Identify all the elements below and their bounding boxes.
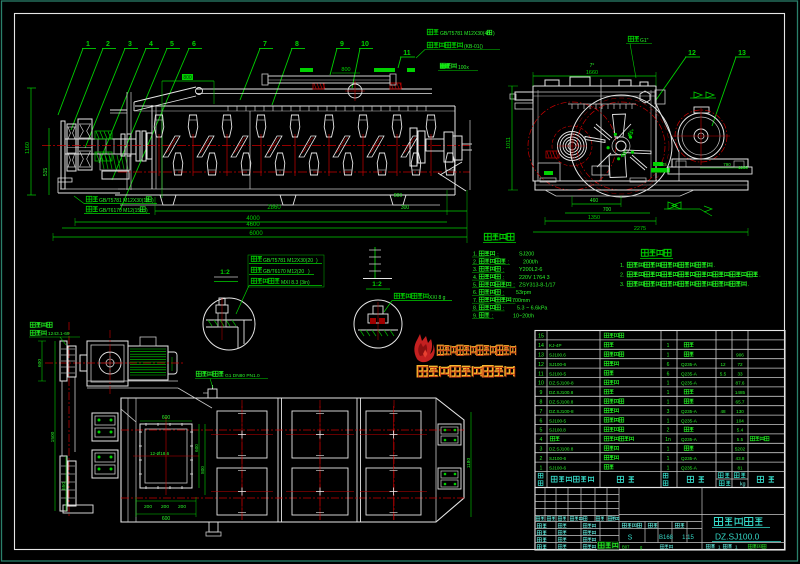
svg-text:800: 800	[341, 67, 350, 73]
svg-text:DZ.SJ100.8: DZ.SJ100.8	[549, 390, 574, 395]
svg-text:11: 11	[538, 371, 543, 377]
svg-text:B07: B07	[622, 545, 630, 550]
svg-text:8: 8	[295, 41, 299, 48]
svg-text:.: .	[759, 273, 761, 279]
svg-text:1: 1	[540, 465, 543, 471]
svg-text:SJ100-6: SJ100-6	[549, 465, 567, 470]
svg-text:B168: B168	[659, 535, 674, 541]
svg-text:6: 6	[667, 371, 670, 377]
svg-text:12: 12	[688, 50, 696, 57]
svg-text:DZ.SJ100.8: DZ.SJ100.8	[549, 400, 574, 405]
svg-text:10~20t/h: 10~20t/h	[513, 313, 534, 319]
svg-text:1160: 1160	[25, 142, 31, 154]
svg-text:3: 3	[667, 409, 670, 415]
svg-text:3: 3	[540, 447, 543, 453]
svg-text:G1 DN80 PN1.0: G1 DN80 PN1.0	[225, 373, 260, 379]
svg-text:SJ100.6: SJ100.6	[549, 353, 566, 358]
svg-text:SJ100.8: SJ100.8	[549, 428, 566, 433]
svg-text:.: .	[714, 263, 716, 269]
svg-text:2860: 2860	[267, 205, 281, 211]
svg-text:SJ100-5: SJ100-5	[549, 418, 567, 423]
svg-text:SJ100-6: SJ100-6	[549, 362, 567, 367]
svg-text:7: 7	[263, 41, 267, 48]
svg-text:GB/T6170 M12(20: GB/T6170 M12(20	[263, 269, 304, 275]
svg-text:Q235-A: Q235-A	[681, 456, 698, 461]
svg-text:2.: 2.	[620, 273, 625, 279]
svg-text:SJ100-6: SJ100-6	[549, 456, 567, 461]
svg-text:1350: 1350	[588, 215, 600, 221]
svg-text:(KB-01(): (KB-01()	[464, 44, 483, 50]
svg-text:6: 6	[667, 362, 670, 368]
svg-text:460: 460	[590, 198, 599, 204]
svg-text:10: 10	[538, 381, 544, 387]
svg-text:1: 1	[667, 390, 670, 396]
svg-text:12: 12	[720, 362, 726, 367]
svg-text:9: 9	[340, 41, 344, 48]
svg-text:11: 11	[403, 50, 411, 57]
svg-text:7°: 7°	[590, 63, 595, 69]
svg-text:600: 600	[194, 444, 199, 452]
svg-text:Q235-A: Q235-A	[681, 409, 698, 414]
svg-text:kg: kg	[740, 482, 746, 488]
svg-text:5.4: 5.4	[737, 428, 744, 433]
svg-text:33: 33	[737, 371, 743, 376]
svg-text:1485: 1485	[735, 390, 746, 395]
svg-text:43.8: 43.8	[736, 456, 745, 461]
svg-text:13: 13	[738, 50, 746, 57]
svg-text:200: 200	[144, 504, 152, 510]
svg-text:200: 200	[161, 504, 169, 510]
svg-text:Q235-A: Q235-A	[681, 418, 698, 423]
svg-text:GB/T5781 M12X30(12: GB/T5781 M12X30(12	[99, 198, 149, 204]
svg-text:3.: 3.	[620, 282, 625, 288]
svg-text:5: 5	[540, 428, 543, 434]
svg-text:.: .	[748, 282, 750, 288]
svg-text:906: 906	[736, 353, 744, 358]
svg-text:1: 1	[667, 447, 670, 453]
svg-text:600: 600	[37, 359, 43, 367]
svg-text:53rpm: 53rpm	[516, 290, 532, 296]
svg-text:65.7: 65.7	[736, 400, 745, 405]
svg-text:81: 81	[737, 465, 743, 470]
svg-text:1: 1	[667, 381, 670, 387]
svg-text:700: 700	[603, 207, 612, 213]
svg-text:220V 1764 3: 220V 1764 3	[519, 275, 550, 281]
svg-text:1.: 1.	[620, 263, 625, 269]
svg-text:GB/T5781 M12X30(40: GB/T5781 M12X30(40	[440, 31, 490, 37]
svg-text:Q235-A: Q235-A	[681, 362, 698, 367]
svg-text:130: 130	[736, 409, 744, 414]
svg-text:104: 104	[736, 418, 744, 423]
svg-text:1180: 1180	[738, 165, 748, 170]
svg-text:DZ.SJ100-8: DZ.SJ100-8	[549, 381, 574, 386]
svg-text:790: 790	[723, 162, 731, 167]
svg-text:Q235-A: Q235-A	[681, 381, 698, 386]
svg-text:1: 1	[667, 400, 670, 406]
svg-text:1: 1	[667, 456, 670, 462]
svg-text:12-Ø18.6: 12-Ø18.6	[150, 451, 170, 456]
svg-text:ZSY313-8-1/17: ZSY313-8-1/17	[519, 283, 556, 289]
svg-text:1:15: 1:15	[682, 535, 694, 541]
svg-text:800: 800	[200, 466, 205, 474]
svg-text:1011: 1011	[506, 137, 512, 149]
svg-text:14: 14	[538, 343, 544, 349]
svg-text:600: 600	[162, 516, 171, 522]
svg-text:1180: 1180	[466, 458, 472, 469]
svg-text:7: 7	[540, 409, 543, 415]
svg-text:Q235-A: Q235-A	[681, 437, 698, 442]
svg-text:GB/T6170 M12(15: GB/T6170 M12(15	[99, 208, 140, 214]
svg-text:8: 8	[540, 400, 543, 406]
svg-text:1:2: 1:2	[372, 281, 382, 288]
svg-text:2: 2	[540, 456, 543, 462]
svg-text:SJ100-5: SJ100-5	[549, 371, 567, 376]
svg-text:515: 515	[43, 168, 49, 177]
svg-text:XXI 8 g: XXI 8 g	[429, 295, 446, 301]
svg-text:650: 650	[61, 482, 67, 490]
svg-text:72: 72	[737, 362, 743, 367]
svg-text:800: 800	[394, 193, 403, 199]
svg-text:600: 600	[162, 415, 171, 421]
svg-text:Y200L2-6: Y200L2-6	[519, 267, 542, 273]
svg-text:DZ.SJ100.8: DZ.SJ100.8	[549, 447, 574, 452]
svg-text:GB/T5781 M12X30(20: GB/T5781 M12X30(20	[263, 258, 313, 264]
svg-text:9: 9	[540, 390, 543, 396]
svg-text:1: 1	[667, 418, 670, 424]
svg-text:1n: 1n	[665, 437, 671, 443]
svg-text:MXI 8.3 (3in): MXI 8.3 (3in)	[281, 280, 310, 286]
svg-text:1: 1	[667, 343, 670, 349]
svg-text:KJ-4P: KJ-4P	[549, 343, 562, 348]
svg-text:5.5: 5.5	[720, 371, 727, 376]
svg-text:5.5: 5.5	[737, 437, 744, 442]
svg-text:345: 345	[659, 162, 667, 167]
svg-text:10: 10	[361, 41, 369, 48]
svg-text:12: 12	[538, 362, 544, 368]
svg-text:1500: 1500	[50, 431, 56, 442]
svg-text:100x: 100x	[458, 65, 469, 71]
svg-text:1: 1	[86, 41, 90, 48]
svg-text:4600: 4600	[246, 222, 260, 228]
svg-text:6000: 6000	[249, 231, 263, 237]
svg-text:87.6: 87.6	[736, 381, 745, 386]
svg-text:6: 6	[192, 41, 196, 48]
svg-text:3: 3	[128, 41, 132, 48]
svg-text:1: 1	[667, 353, 670, 359]
svg-text:1243.1-69: 1243.1-69	[48, 331, 70, 337]
svg-text:2275: 2275	[634, 226, 646, 232]
svg-text:6: 6	[540, 418, 543, 424]
svg-text:13: 13	[538, 353, 544, 359]
svg-text:G1": G1"	[640, 38, 649, 44]
svg-text:800: 800	[183, 75, 192, 81]
svg-text:1:2: 1:2	[220, 269, 230, 276]
svg-text:5202: 5202	[735, 447, 746, 452]
svg-text:2: 2	[106, 41, 110, 48]
svg-text:300: 300	[401, 205, 410, 211]
svg-text:1: 1	[667, 465, 670, 471]
svg-text:4: 4	[149, 41, 153, 48]
svg-text:48: 48	[720, 409, 726, 414]
svg-text:S: S	[628, 535, 633, 542]
svg-text:15: 15	[538, 334, 544, 340]
svg-text:5: 5	[170, 41, 174, 48]
svg-text:Q235-A: Q235-A	[681, 465, 698, 470]
svg-text:5.3 ~ 6.6kPa: 5.3 ~ 6.6kPa	[517, 306, 547, 312]
svg-text:Q235-A: Q235-A	[681, 371, 698, 376]
svg-text:2: 2	[667, 428, 670, 434]
svg-text:200: 200	[178, 504, 186, 510]
svg-text:200t/h: 200t/h	[523, 259, 538, 265]
svg-text:DZ.SJ100-8: DZ.SJ100-8	[549, 409, 574, 414]
svg-text:DZ.SJ100.0: DZ.SJ100.0	[715, 532, 760, 542]
svg-text:SJ200: SJ200	[519, 252, 534, 258]
svg-text:4: 4	[540, 437, 543, 443]
svg-text:1660: 1660	[586, 70, 598, 76]
